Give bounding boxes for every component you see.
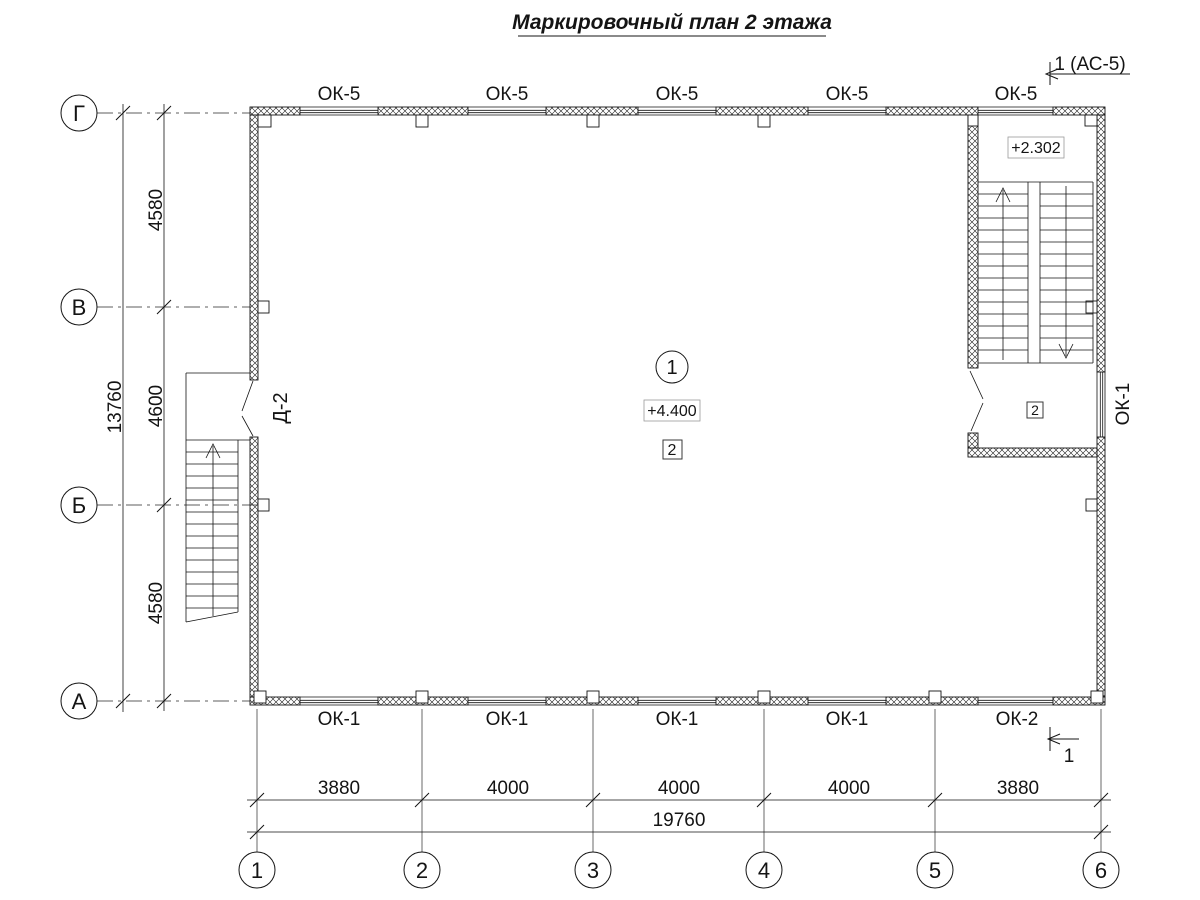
row-axis-bubbles: Г В Б А [61, 95, 97, 719]
room-main-marks: 1 +4.400 2 [644, 351, 700, 459]
wall-segment [968, 433, 978, 448]
axis-bubble-label: 2 [416, 858, 428, 883]
pilaster [254, 691, 266, 703]
pilaster [416, 115, 428, 127]
door-label: Д-2 [270, 392, 292, 423]
axis-bubble-label: 4 [758, 858, 770, 883]
window-label: ОК-1 [486, 709, 529, 730]
dimension-label: 4000 [658, 778, 700, 799]
axis-bubble-label: Б [72, 493, 86, 518]
left-dimensions: 4580 4600 4580 13760 [105, 104, 171, 712]
door-leaf-icon [242, 381, 253, 436]
pilaster [1085, 115, 1097, 126]
wall-segment [716, 107, 808, 115]
dimension-label: 4580 [146, 189, 167, 231]
window-label: ОК-1 [318, 709, 361, 730]
axis-bubble-label: В [72, 295, 87, 320]
pilaster [1086, 499, 1097, 511]
axis-bubble-label: 1 [251, 858, 263, 883]
stair-frame [978, 182, 1093, 363]
window-label: ОК-5 [318, 84, 361, 105]
window-label: ОК-2 [996, 709, 1039, 730]
section-label: 1 [1064, 746, 1075, 767]
pilaster [929, 691, 941, 703]
section-label: 1 (АС-5) [1054, 54, 1125, 75]
window-label: ОК-5 [995, 84, 1038, 105]
pilaster [758, 691, 770, 703]
dimension-label: 3880 [997, 778, 1039, 799]
wall-segment [968, 448, 1097, 457]
pilaster [258, 499, 269, 511]
pilaster [968, 115, 978, 126]
window-label: ОК-5 [656, 84, 699, 105]
wall-segment [250, 107, 300, 115]
dimension-label: 4000 [828, 778, 870, 799]
room-number: 1 [666, 357, 677, 379]
dimension-label: 3880 [318, 778, 360, 799]
level-label: +2.302 [1011, 140, 1060, 157]
title-block: Маркировочный план 2 этажа [512, 11, 832, 36]
wall-segment [250, 115, 258, 380]
staircase: +2.302 2 [970, 137, 1093, 431]
stair-treads-right-flight [1040, 194, 1093, 350]
pilaster [258, 301, 269, 313]
wall-segment [250, 437, 258, 697]
window-label: ОК-1 [826, 709, 869, 730]
wall-segment [378, 107, 468, 115]
pilaster [587, 691, 599, 703]
axis-bubble-label: Г [73, 101, 85, 126]
door-leaf-icon [970, 371, 983, 431]
stair-treads [186, 452, 238, 608]
exterior-stair [186, 373, 250, 622]
dimension-label: 4580 [146, 582, 167, 624]
pilaster [587, 115, 599, 127]
door-d2: Д-2 [242, 381, 292, 436]
wall-segment [886, 107, 978, 115]
stair-landing [186, 373, 250, 622]
section-mark-bottom: 1 [1048, 727, 1079, 767]
wall-segment [546, 107, 638, 115]
pilaster [1091, 691, 1103, 703]
pilaster [416, 691, 428, 703]
wall-segment [1097, 437, 1105, 697]
windows [300, 107, 1105, 705]
dimension-total-label: 19760 [653, 810, 706, 831]
level-label: +4.400 [647, 403, 696, 420]
pilaster [758, 115, 770, 127]
window-labels: ОК-5 ОК-5 ОК-5 ОК-5 ОК-5 ОК-1 ОК-1 ОК-1 … [318, 84, 1134, 730]
bottom-dimensions: 3880 4000 4000 4000 3880 19760 [247, 778, 1111, 839]
floor-plan-drawing: Маркировочный план 2 этажа 4580 4600 458… [0, 0, 1200, 900]
page-title: Маркировочный план 2 этажа [512, 11, 832, 34]
window-glazing-right [1097, 372, 1105, 437]
dimension-label: 4600 [146, 385, 167, 427]
pilaster [258, 115, 271, 127]
window-label: ОК-1 [656, 709, 699, 730]
wall-segment [1097, 115, 1105, 372]
finish-tag: 2 [668, 442, 677, 459]
wall-segment [968, 115, 978, 368]
axis-bubble-label: А [72, 689, 87, 714]
finish-tag: 2 [1031, 402, 1039, 418]
axis-lines [97, 113, 1101, 852]
axis-bubble-label: 5 [929, 858, 941, 883]
window-label: ОК-5 [826, 84, 869, 105]
axis-bubble-label: 3 [587, 858, 599, 883]
section-mark-top: 1 (АС-5) [1046, 54, 1130, 85]
dimension-label: 4000 [487, 778, 529, 799]
window-label: ОК-5 [486, 84, 529, 105]
col-axis-bubbles: 1 2 3 4 5 6 [239, 852, 1119, 888]
pilaster [1086, 301, 1097, 313]
window-label: ОК-1 [1113, 383, 1134, 426]
dimension-total-label: 13760 [105, 381, 126, 434]
axis-bubble-label: 6 [1095, 858, 1107, 883]
wall-segment [1053, 107, 1105, 115]
